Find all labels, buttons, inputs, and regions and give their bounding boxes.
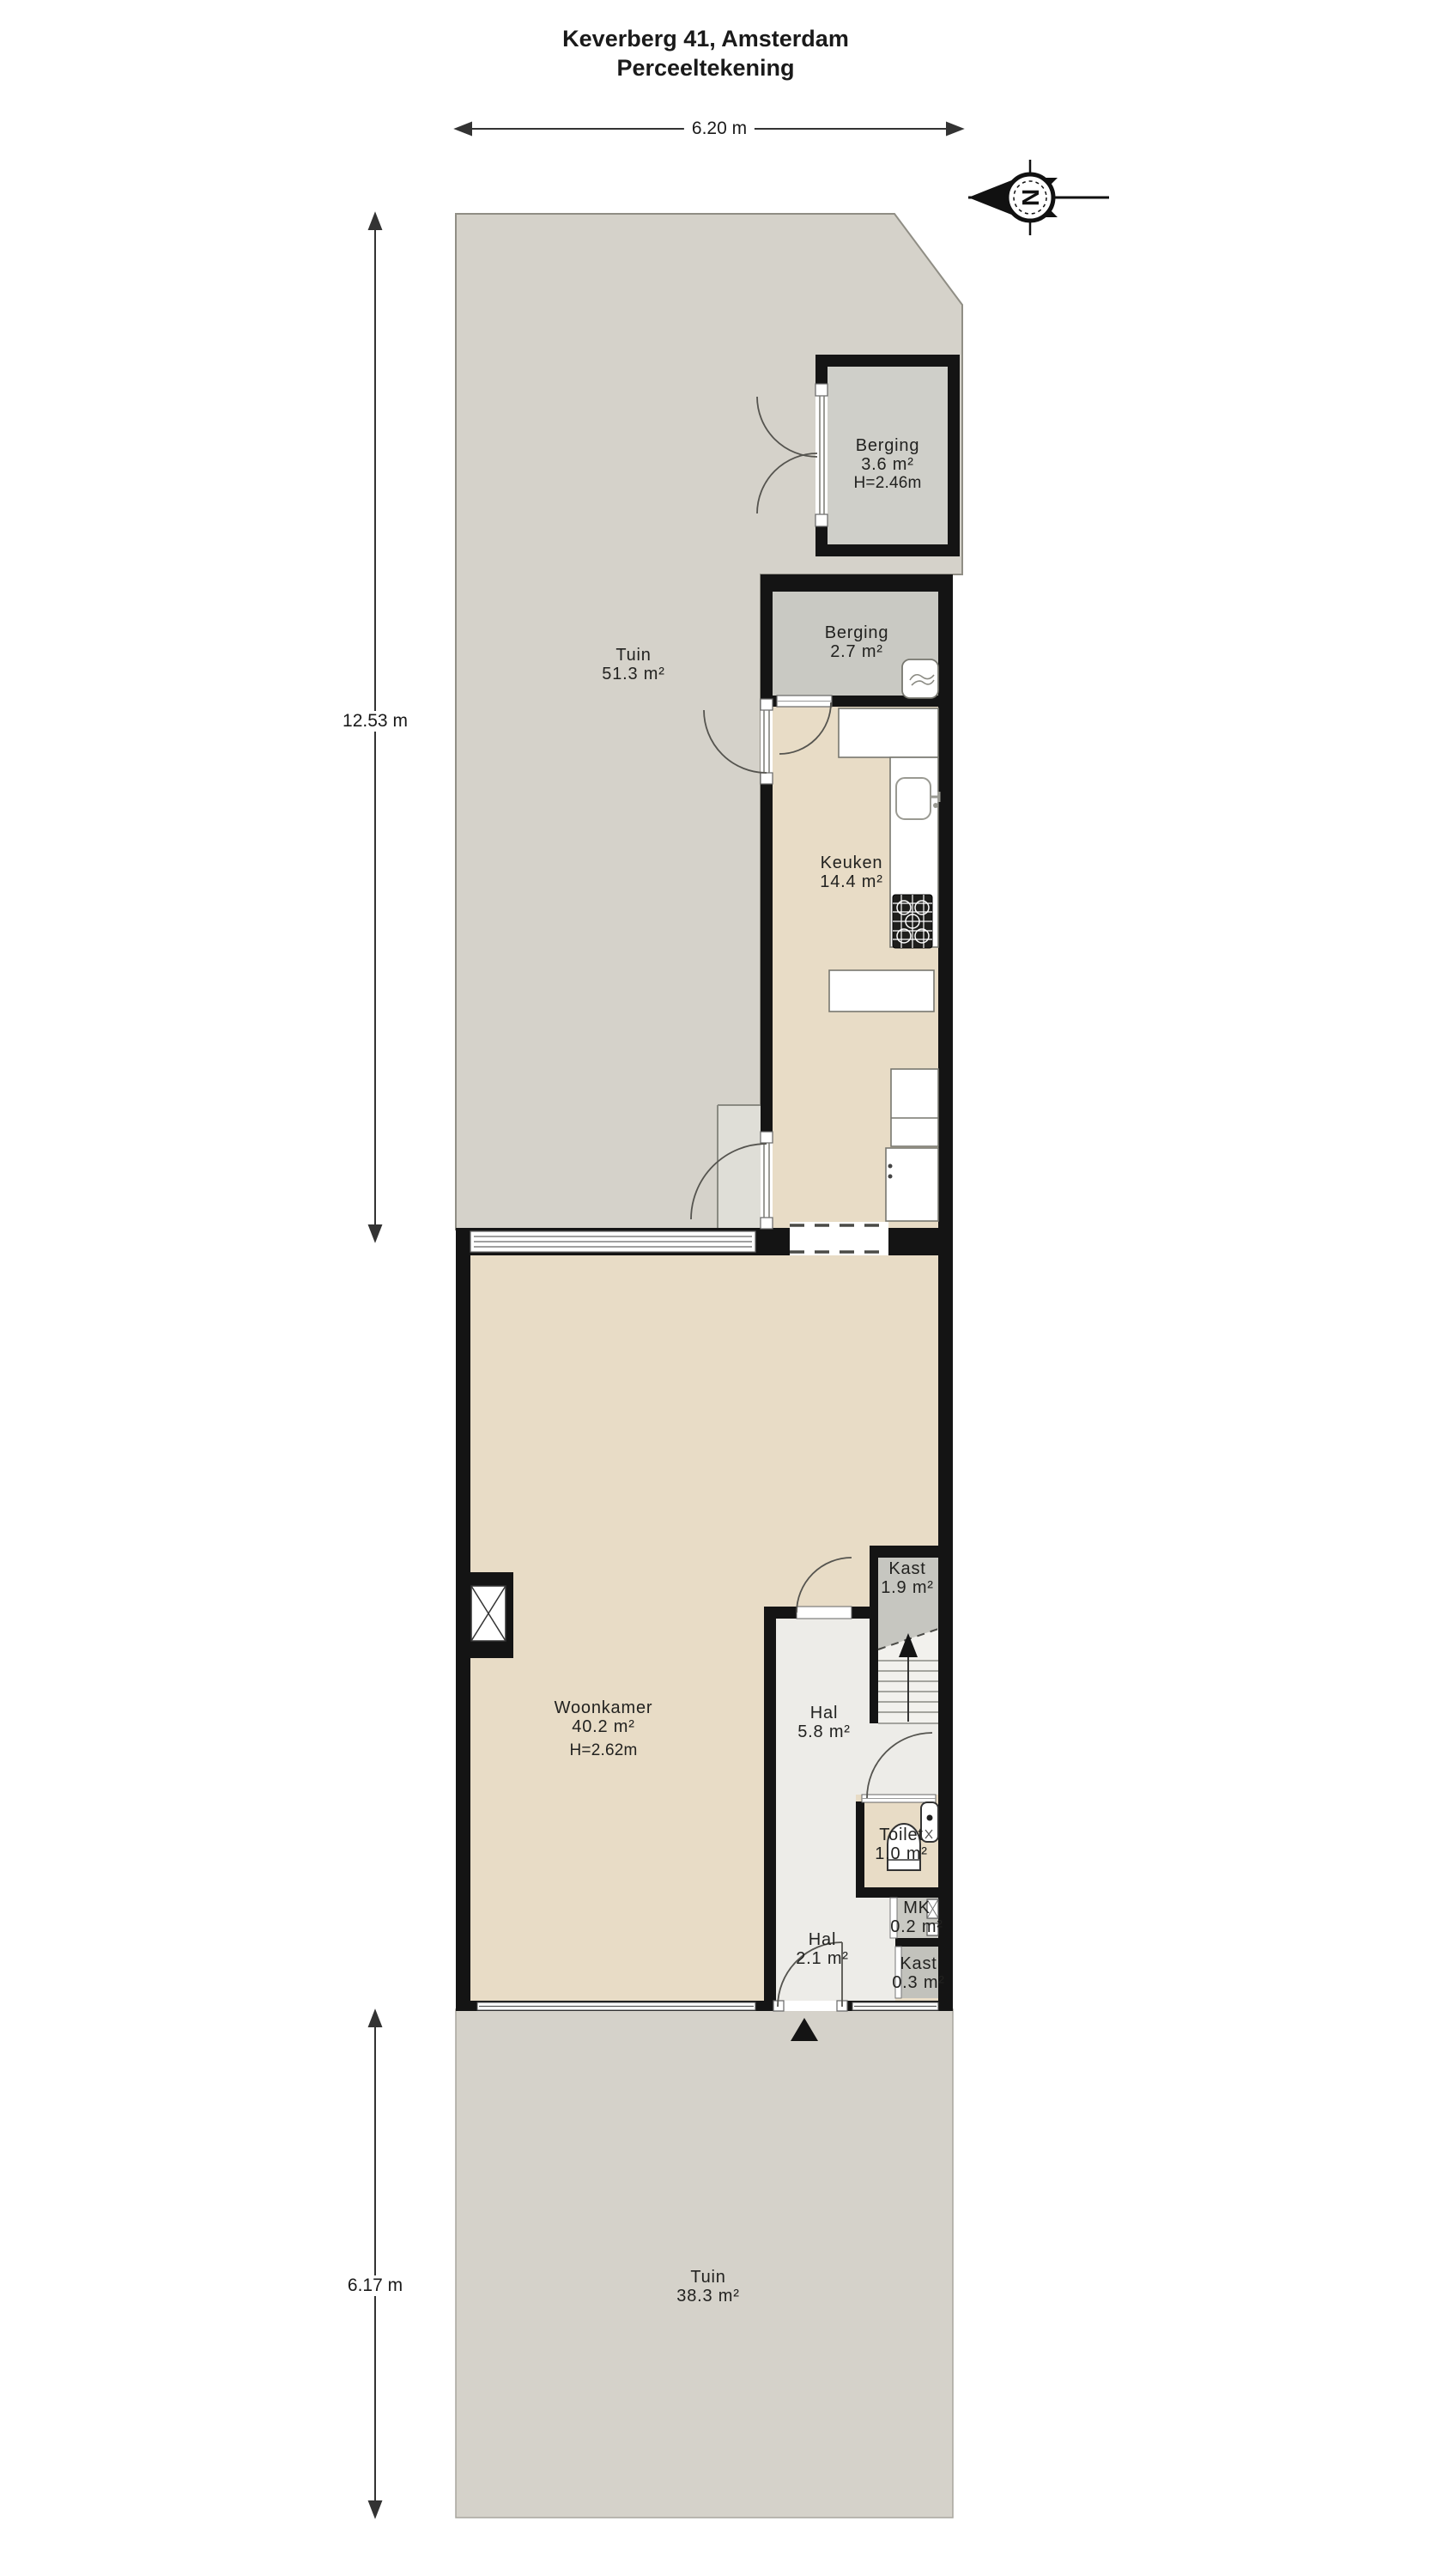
room-name: Kast [881,1559,933,1578]
room-area: 38.3 m² [676,2287,739,2306]
room-name: Woonkamer [555,1698,653,1717]
room-name: Keuken [820,854,882,872]
porch-area [718,1105,761,1230]
room-name: Hal [796,1930,848,1949]
room-area: 51.3 m² [602,665,664,683]
room-name: Tuin [602,646,664,665]
room-area: 3.6 m² [853,455,921,474]
room-area: 0.3 m² [892,1973,944,1992]
floorplan-drawing: N [0,0,1449,2576]
room-label-toilet: Toilet 1.0 m² [875,1826,927,1863]
room-label-mk: MK 0.2 m² [890,1899,943,1936]
room-area: 2.1 m² [796,1949,848,1968]
room-label-tuin-top: Tuin 51.3 m² [602,646,664,683]
kitchen-counter-top [839,708,938,757]
page-title: Keverberg 41, Amsterdam Perceeltekening [562,24,849,82]
room-name: Berging [825,623,889,642]
room-label-tuin-onder: Tuin 38.3 m² [676,2268,739,2306]
dimension-top-width: 6.20 m [684,118,755,139]
dimension-left-lower: 6.17 m [340,2275,410,2296]
stove [893,895,932,948]
chimney-shaft [456,1572,513,1658]
room-area: 40.2 m² [555,1717,653,1736]
room-label-hal: Hal 5.8 m² [797,1704,850,1741]
room-label-hal-entree: Hal 2.1 m² [796,1930,848,1968]
room-label-keuken: Keuken 14.4 m² [820,854,882,891]
floorplan-page: N Keverberg 41, Amsterdam Perceeltekenin… [0,0,1449,2576]
dimension-left-upper: 12.53 m [335,711,415,732]
north-compass-icon: N [968,160,1109,235]
room-name: MK [890,1899,943,1917]
room-label-berging-top: Berging 3.6 m² H=2.46m [853,436,921,493]
room-height: H=2.62m [555,1741,653,1760]
room-floor-hal-entree2 [856,1898,895,2002]
room-label-kast-entree: Kast 0.3 m² [892,1954,944,1992]
title-subtitle: Perceeltekening [562,53,849,82]
room-area: 14.4 m² [820,872,882,891]
boiler [902,659,938,698]
room-area: 1.0 m² [875,1844,927,1863]
room-area: 5.8 m² [797,1722,850,1741]
room-area: 2.7 m² [825,642,889,661]
room-name: Berging [853,436,921,455]
room-name: Toilet [875,1826,927,1844]
room-label-woonkamer: Woonkamer 40.2 m² H=2.62m [555,1698,653,1760]
room-label-kast-boven: Kast 1.9 m² [881,1559,933,1597]
room-name: Tuin [676,2268,739,2287]
kitchen-appliance [891,1069,938,1146]
garden-bottom [456,2009,953,2518]
kitchen-island [829,970,934,1012]
compass-north-letter: N [1017,189,1044,206]
room-label-berging: Berging 2.7 m² [825,623,889,661]
room-name: Kast [892,1954,944,1973]
kitchen-fridge [886,1148,938,1221]
room-area: 1.9 m² [881,1578,933,1597]
room-area: 0.2 m² [890,1917,943,1936]
room-height: H=2.46m [853,474,921,493]
title-address: Keverberg 41, Amsterdam [562,24,849,53]
room-name: Hal [797,1704,850,1722]
